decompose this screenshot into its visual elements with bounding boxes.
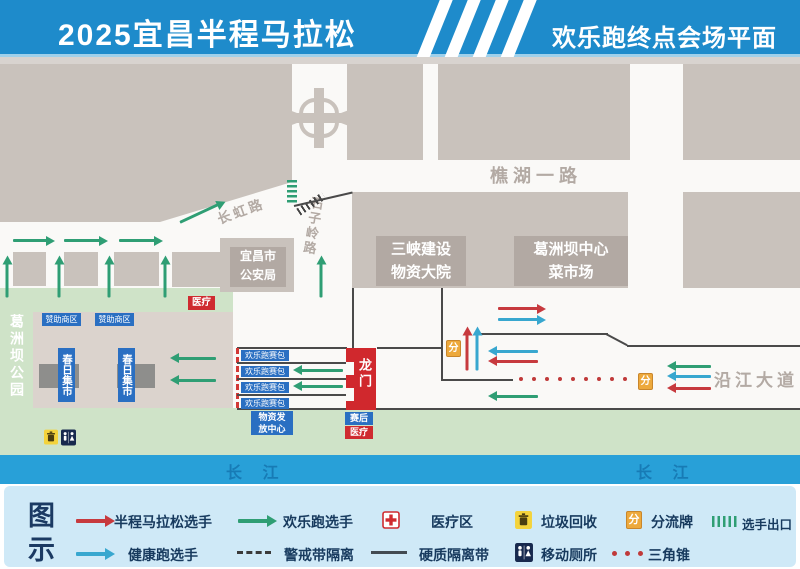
toilet-icon [61,429,76,446]
blue-arrow-left [675,375,711,378]
green-arrow-right [13,239,47,242]
red-arrow-left [496,360,538,363]
blue-arrow-up [476,335,479,371]
building-block [438,64,630,160]
barrier-line [441,288,443,381]
green-arrow-left [178,379,216,382]
legend-title-line2: 示 [28,528,55,567]
legend-label: 警戒带隔离 [284,545,354,565]
blue-arrow-right [498,318,538,321]
stall-block [64,252,98,286]
green-arrow-up [320,264,323,298]
park-name: 葛洲坝公园 [7,314,27,399]
chute-divider [237,394,346,396]
chute-divider [237,378,346,380]
barrier-line [627,345,800,347]
building-block [683,64,800,160]
barrier-line-jog [606,333,628,346]
gate-notch [346,388,354,401]
legend-label: 三角锥 [648,545,690,565]
barrier-line-bank [237,408,800,410]
trash-icon [515,511,532,529]
river-label: 长 江 [226,459,286,483]
venue-map-poster: 2025宜昌半程马拉松 欢乐跑终点会场平面图 长 江 长 江 樵湖一路 长虹路 … [0,0,800,569]
divert-sign: 分 [446,340,461,357]
gate-notch [346,362,354,375]
building-block [683,192,800,288]
green-arrow-left [675,365,711,368]
vendor-tag: 赞助商区 [42,313,81,326]
green-arrow-up [164,264,167,298]
dashed-line-icon [237,551,271,554]
chute-label: 欢乐跑赛包 [241,398,289,409]
stall-block [114,252,159,286]
label-sanxia-compound: 三峡建设 物资大院 [376,236,466,286]
legend-green-arrow-icon [238,519,268,523]
chute-divider [237,362,346,364]
cone-row [519,377,636,381]
label-gezhouba-market: 葛洲坝中心 菜市场 [514,236,628,286]
toilet-icon [515,543,533,562]
legend-label: 健康跑选手 [128,545,198,565]
solid-line-icon [371,551,407,554]
green-arrow-left [178,357,216,360]
legend-label: 欢乐跑选手 [283,512,353,532]
green-arrow-up [58,264,61,298]
legend-label: 医疗区 [431,512,473,532]
label-police-bureau: 宜昌市 公安局 [230,247,286,287]
top-road-strip [0,57,800,64]
road-label-yanjiang: 沿江大道 [714,366,798,391]
barrier-line [441,379,513,381]
legend-label: 硬质隔离带 [419,545,489,565]
event-title: 2025宜昌半程马拉松 [58,10,357,54]
chute-label: 欢乐跑赛包 [241,382,289,393]
legend-label: 垃圾回收 [541,512,597,532]
blue-arrow-left [496,350,538,353]
red-arrow-right [498,307,538,310]
green-arrow-up [6,264,9,298]
gate-label: 龙门 [355,358,374,390]
medical-tag: 医疗 [188,296,215,310]
barrier-line [377,347,442,349]
green-arrow-left [301,385,343,388]
green-arrow-left [496,395,538,398]
green-arrow-left [301,369,343,372]
green-arrow-up [108,264,111,298]
legend-label: 移动厕所 [541,545,597,565]
trash-icon [44,429,58,445]
barrier-line [352,288,354,348]
red-arrow-up [466,335,469,371]
barrier-line [237,347,347,349]
chute-label: 欢乐跑赛包 [241,350,289,361]
divert-sign-icon: 分 [626,511,642,529]
medical-cross-icon [382,511,400,529]
spring-market-label: 春日集市 [58,348,75,402]
supply-center-label: 物资发 放中心 [251,411,293,435]
post-race-medical: 医疗 [345,426,373,439]
building-block [347,64,423,160]
red-arrow-left [675,387,711,390]
road-label-qiaohu: 樵湖一路 [490,162,582,188]
green-arrow-right [119,239,155,242]
interchange-icon [289,88,349,148]
legend-blue-arrow-icon [76,552,106,556]
stall-block [13,252,46,286]
exit-hatch-icon [712,516,738,527]
legend-label: 选手出口 [742,514,792,533]
river-label: 长 江 [636,459,696,483]
legend-label: 半程马拉松选手 [114,512,212,532]
runner-exit-marker [287,180,297,204]
divert-sign: 分 [638,373,653,390]
chute-label: 欢乐跑赛包 [241,366,289,377]
legend-red-arrow-icon [76,519,106,523]
river-bank [0,408,800,455]
stall-block [172,252,222,287]
post-race-label: 赛后 [345,412,373,425]
vendor-tag: 赞助商区 [95,313,134,326]
spring-market-label: 春日集市 [118,348,135,402]
legend-label: 分流牌 [651,512,693,532]
red-dots-icon [612,551,651,556]
green-arrow-right [64,239,100,242]
barrier-line [478,333,608,335]
